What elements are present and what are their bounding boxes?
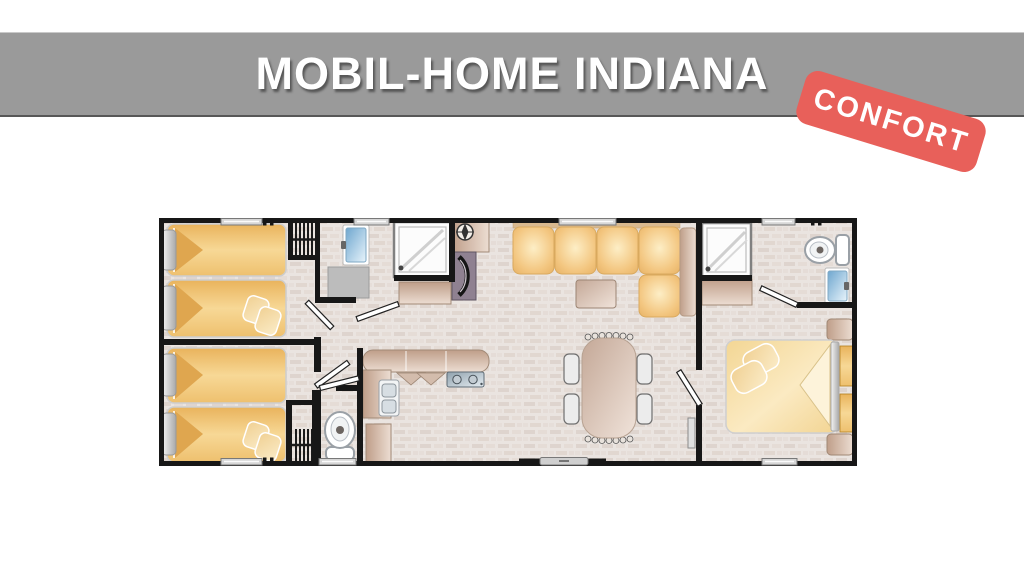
wc-room (325, 412, 355, 460)
window (559, 219, 616, 226)
wardrobe (827, 434, 853, 455)
page-title: MOBIL-HOME INDIANA (256, 48, 769, 100)
corner-cabinet (452, 220, 489, 252)
window (354, 219, 389, 226)
entrance-door (519, 458, 606, 466)
faucet (341, 241, 346, 249)
shower-cabin (394, 222, 451, 277)
kitchen-cabinet (366, 424, 391, 462)
compass-icon (456, 224, 474, 241)
sofa-armrest (680, 228, 696, 316)
washbasin (825, 268, 849, 304)
single-bed (167, 348, 286, 403)
stove (447, 372, 484, 387)
headboard (831, 342, 839, 431)
vanity-cabinet (399, 282, 451, 304)
faucet (844, 282, 849, 290)
window (762, 459, 797, 466)
headboard (162, 286, 176, 330)
kitchen-counter-top (363, 350, 489, 372)
toilet (805, 235, 849, 265)
shower-cabin (702, 223, 751, 277)
shower-head (399, 266, 404, 271)
nightstand (840, 394, 853, 432)
water-heater-unit (452, 252, 476, 300)
bathroom-cabinet (702, 279, 752, 305)
shower-tray (328, 267, 369, 298)
twin-bedroom-top (162, 224, 286, 337)
shower-head (706, 267, 711, 272)
dining-table (582, 338, 636, 438)
window (319, 459, 356, 466)
window (221, 219, 262, 226)
single-bed (167, 224, 286, 276)
headboard (162, 413, 176, 455)
wardrobe (827, 319, 853, 340)
floorplan (159, 218, 857, 466)
page: MOBIL-HOME INDIANA CONFORT (0, 0, 1024, 576)
washbasin (341, 225, 369, 265)
toilet (325, 412, 355, 460)
radiator (688, 418, 695, 448)
window (762, 219, 795, 226)
coffee-table (576, 280, 616, 308)
wardrobe-top (292, 223, 316, 256)
nightstand (840, 346, 853, 386)
headboard (162, 354, 176, 396)
kitchen-sink (379, 380, 399, 416)
headboard (162, 230, 176, 270)
window (221, 459, 262, 466)
